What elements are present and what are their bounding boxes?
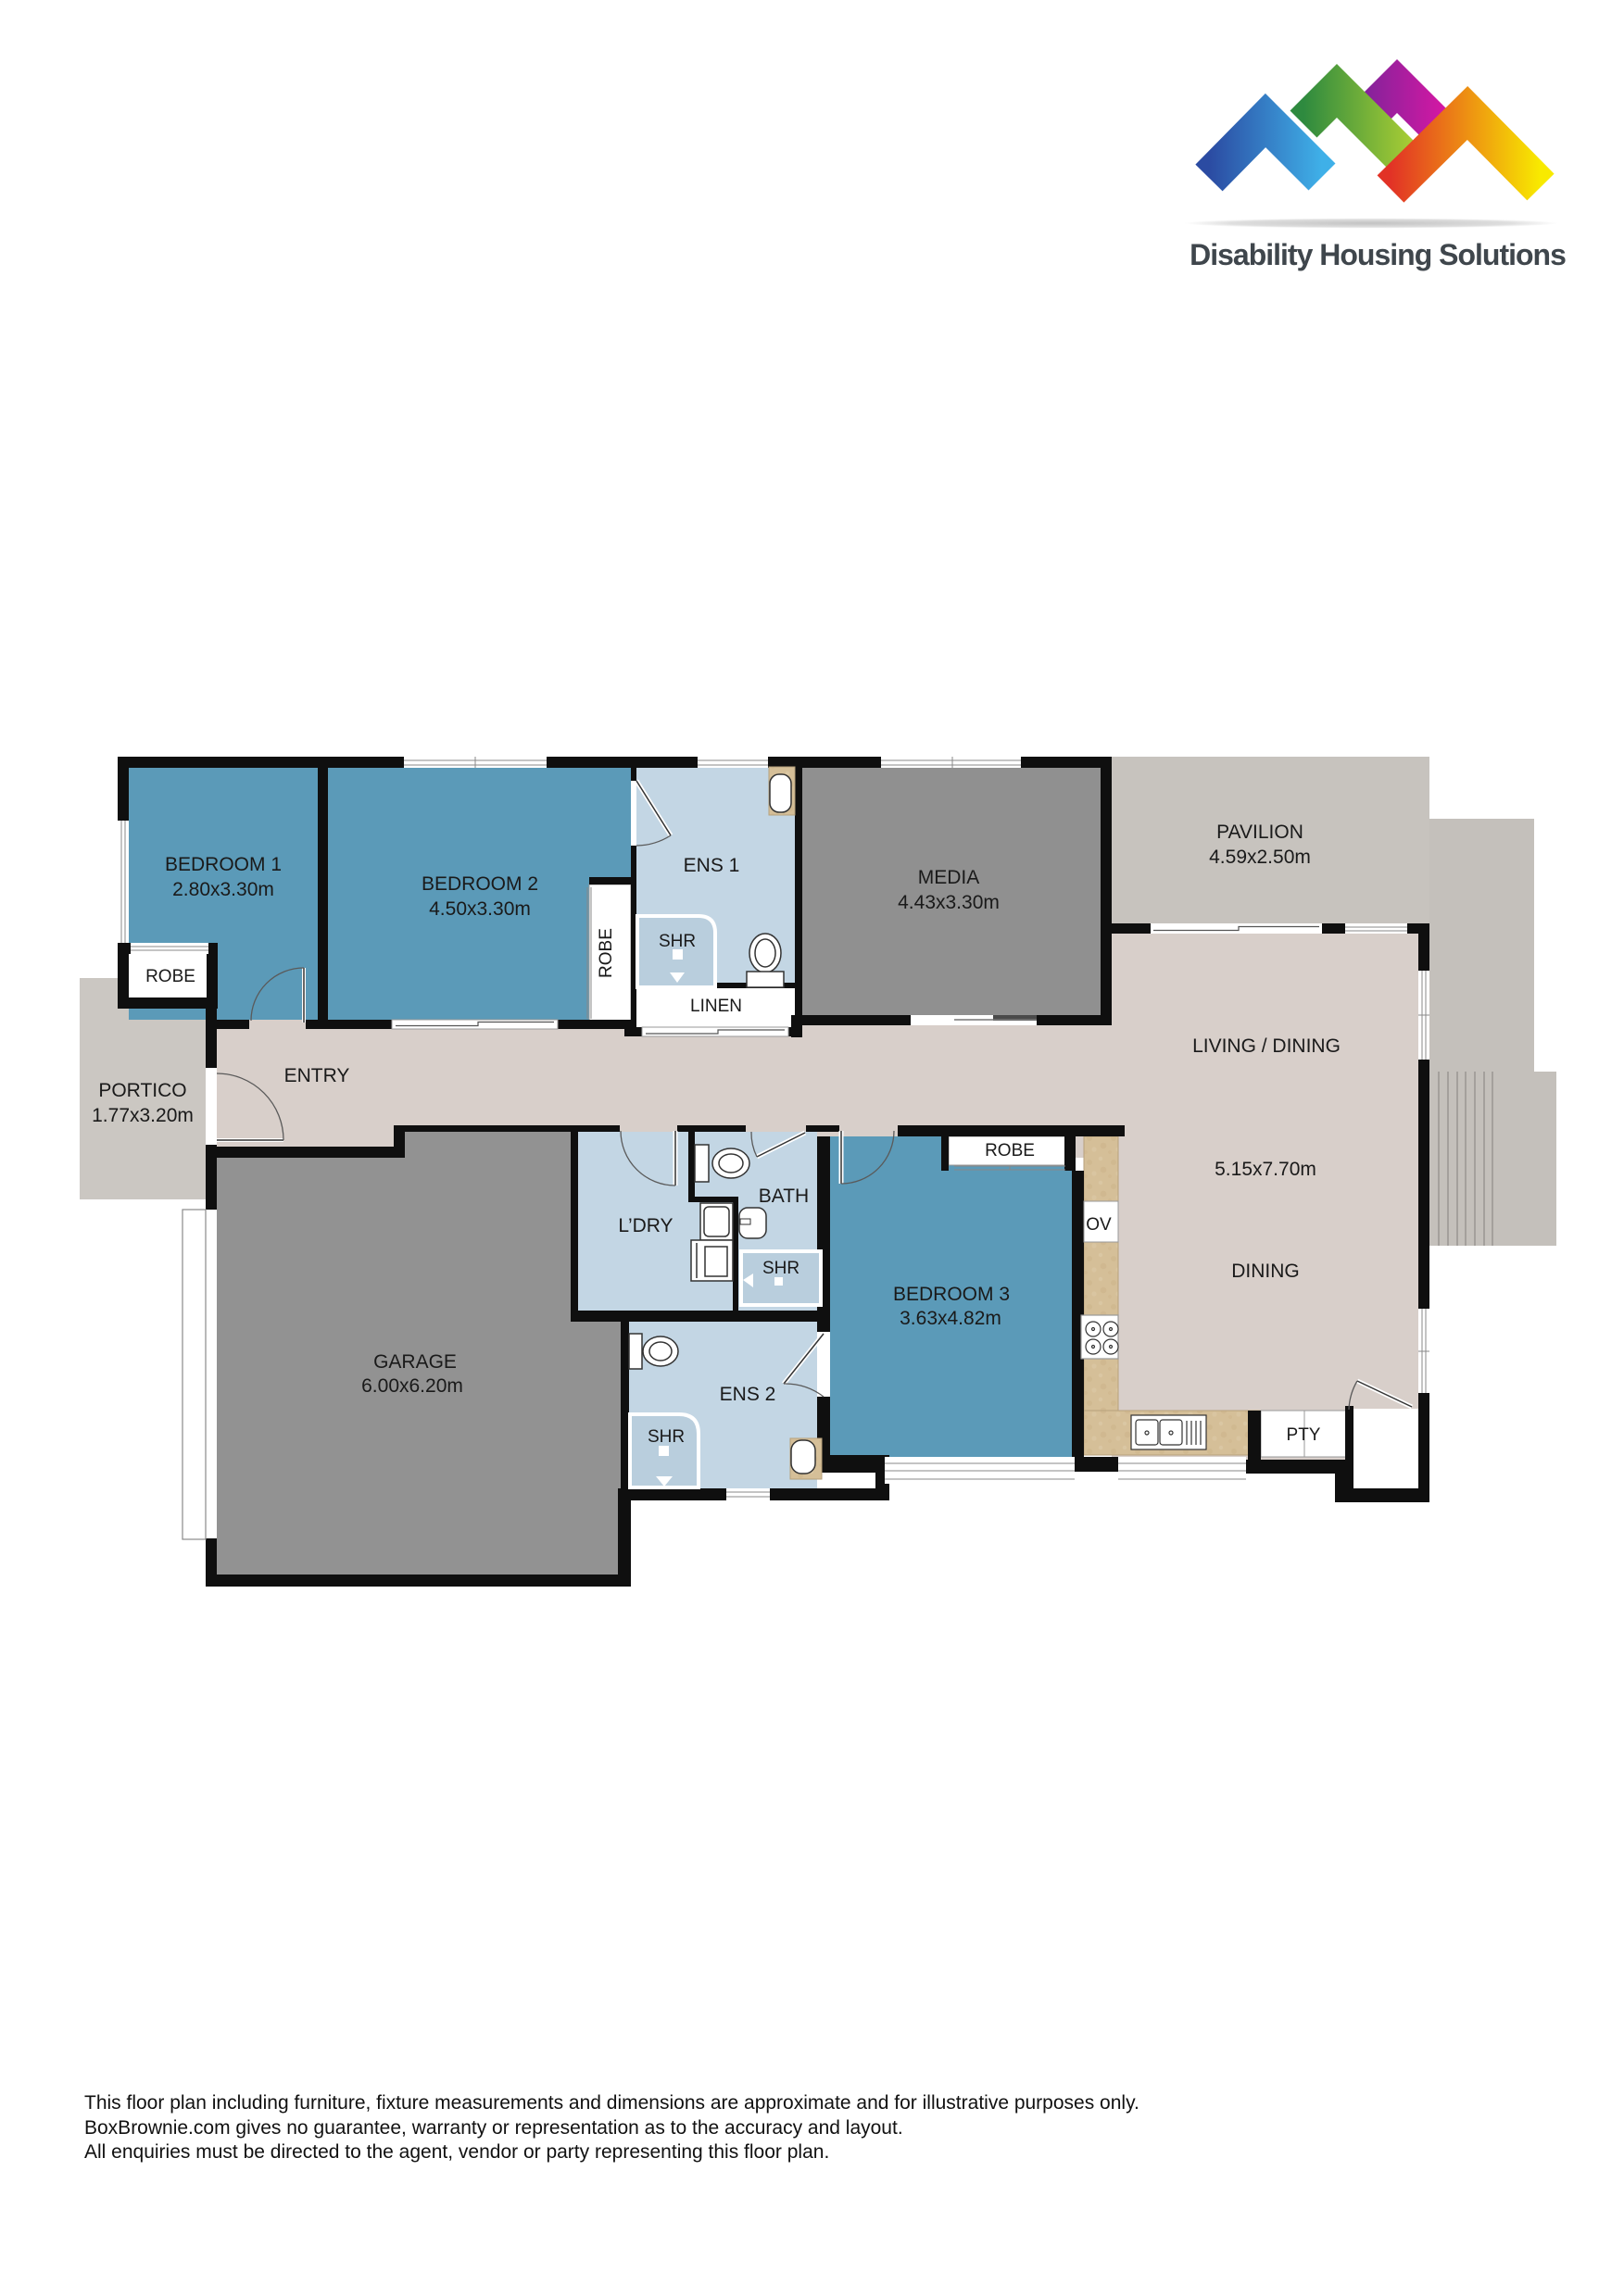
svg-text:GARAGE: GARAGE [373,1351,457,1373]
svg-text:All enquiries must be directed: All enquiries must be directed to the ag… [84,2141,829,2163]
svg-text:SHR: SHR [762,1259,799,1278]
svg-text:4.50x3.30m: 4.50x3.30m [429,898,531,920]
svg-text:DINING: DINING [1231,1261,1300,1282]
svg-text:LINEN: LINEN [690,997,742,1016]
svg-text:BEDROOM 3: BEDROOM 3 [893,1284,1010,1305]
svg-text:BEDROOM 1: BEDROOM 1 [165,854,282,875]
svg-text:LIVING / DINING: LIVING / DINING [1192,1035,1341,1057]
svg-text:4.43x3.30m: 4.43x3.30m [898,892,1000,913]
svg-text:2.80x3.30m: 2.80x3.30m [172,879,274,900]
svg-text:Disability Housing Solutions: Disability Housing Solutions [1190,238,1566,271]
svg-text:ENS 1: ENS 1 [684,855,740,876]
svg-text:ROBE: ROBE [145,967,195,986]
svg-text:5.15x7.70m: 5.15x7.70m [1215,1159,1316,1180]
svg-text:OV: OV [1086,1215,1112,1235]
svg-text:ENTRY: ENTRY [284,1065,350,1086]
svg-text:SHR: SHR [659,932,696,951]
svg-text:This floor plan including furn: This floor plan including furniture, fix… [84,2092,1139,2114]
svg-text:MEDIA: MEDIA [918,867,980,888]
svg-text:BATH: BATH [759,1186,809,1207]
svg-text:BoxBrownie.com gives no guaran: BoxBrownie.com gives no guarantee, warra… [84,2117,903,2139]
svg-text:SHR: SHR [648,1427,685,1447]
svg-text:ROBE: ROBE [597,928,616,978]
svg-text:PTY: PTY [1287,1425,1321,1445]
svg-text:PORTICO: PORTICO [98,1080,186,1101]
svg-text:1.77x3.20m: 1.77x3.20m [92,1105,194,1126]
svg-text:ENS 2: ENS 2 [720,1384,776,1405]
svg-text:ROBE: ROBE [985,1141,1035,1161]
svg-text:PAVILION: PAVILION [1216,822,1303,843]
svg-text:BEDROOM 2: BEDROOM 2 [422,873,538,895]
svg-text:3.63x4.82m: 3.63x4.82m [900,1308,1001,1329]
svg-text:L’DRY: L’DRY [618,1215,673,1236]
svg-text:4.59x2.50m: 4.59x2.50m [1209,847,1311,868]
svg-text:6.00x6.20m: 6.00x6.20m [361,1375,463,1397]
